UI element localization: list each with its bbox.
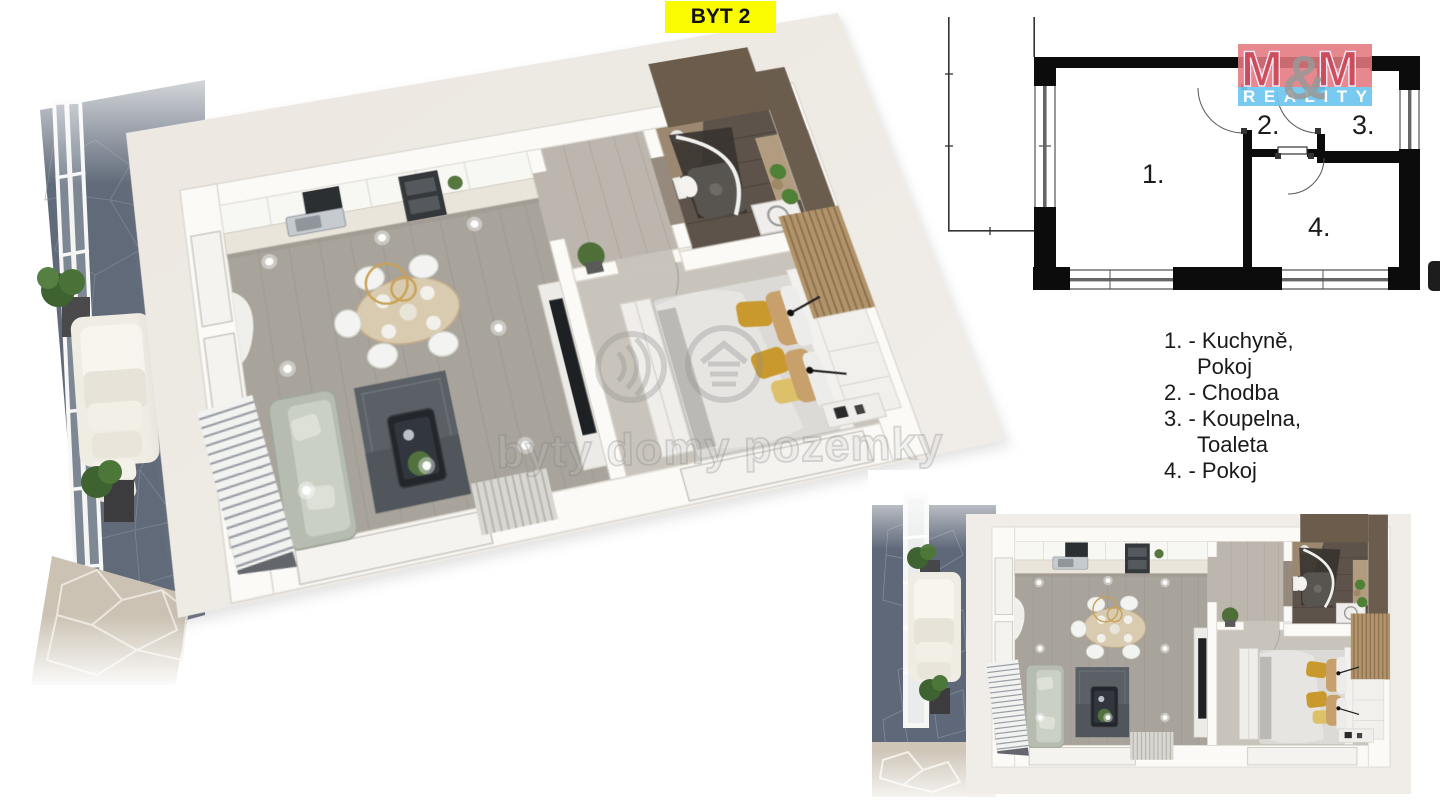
svg-text:4.: 4.	[1308, 212, 1331, 242]
svg-text:1.: 1.	[1142, 159, 1165, 189]
svg-text:byty domy pozemky: byty domy pozemky	[496, 417, 944, 477]
svg-text:2.: 2.	[1257, 110, 1280, 140]
svg-text:&: &	[1282, 44, 1327, 108]
svg-text:3.: 3.	[1352, 110, 1375, 140]
